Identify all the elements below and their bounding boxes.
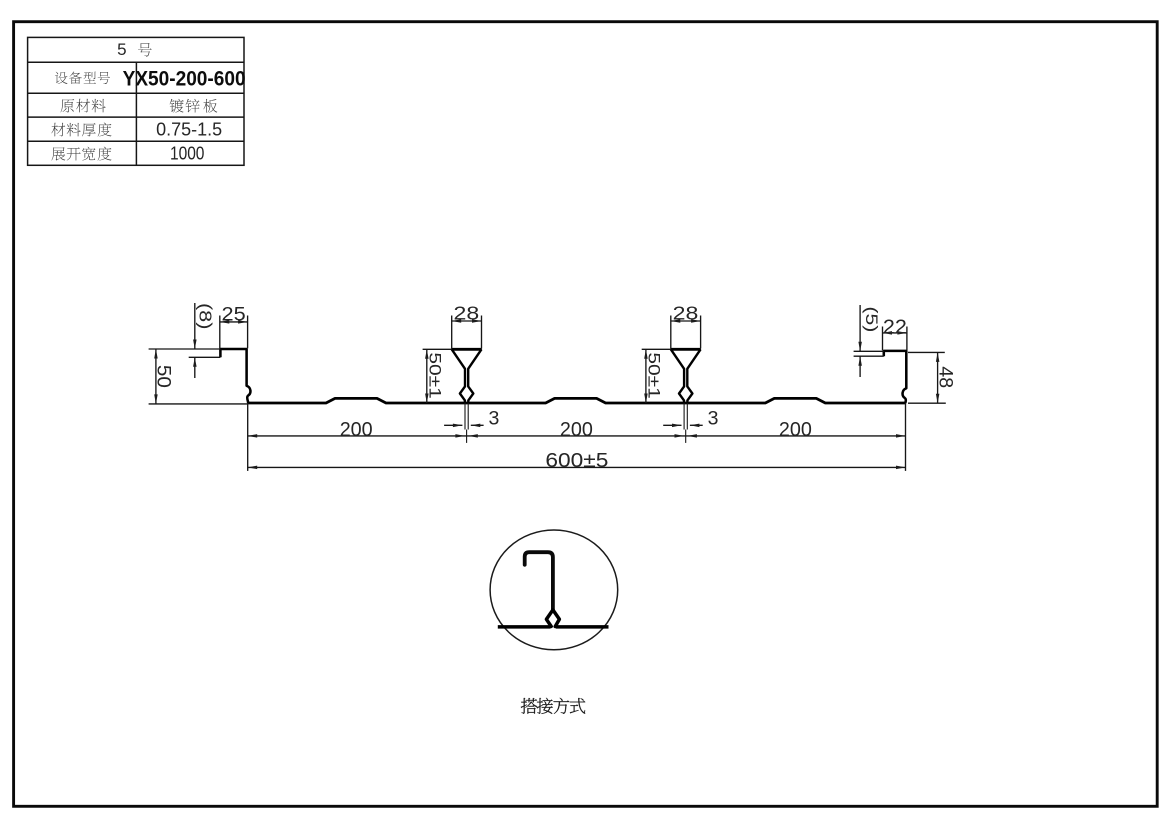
- svg-text:3: 3: [488, 408, 499, 430]
- svg-text:50: 50: [152, 365, 173, 388]
- svg-text:600±5: 600±5: [545, 449, 608, 472]
- svg-text:YX50-200-600: YX50-200-600: [123, 67, 246, 91]
- svg-text:5: 5: [117, 40, 126, 59]
- svg-text:200: 200: [560, 418, 593, 441]
- svg-text:200: 200: [340, 418, 373, 441]
- svg-text:0.75-1.5: 0.75-1.5: [156, 120, 222, 140]
- svg-text:3: 3: [708, 408, 719, 430]
- svg-text:22: 22: [883, 315, 907, 338]
- svg-text:(5): (5): [862, 306, 881, 332]
- svg-text:48: 48: [935, 366, 956, 388]
- svg-text:200: 200: [779, 418, 812, 441]
- svg-text:50±1: 50±1: [425, 352, 444, 399]
- svg-text:(8): (8): [195, 303, 215, 330]
- svg-text:28: 28: [454, 303, 480, 324]
- svg-text:28: 28: [673, 303, 699, 324]
- svg-text:50±1: 50±1: [645, 352, 664, 399]
- svg-text:1000: 1000: [170, 144, 205, 164]
- svg-text:25: 25: [222, 305, 246, 326]
